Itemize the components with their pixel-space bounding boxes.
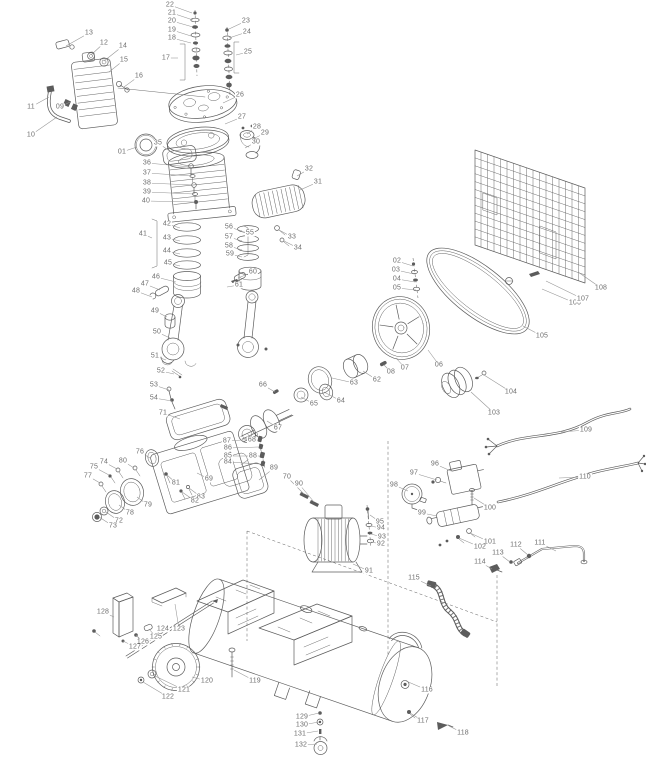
leader-line-80	[123, 461, 134, 468]
leader-line-114	[480, 562, 492, 569]
leader-line-01	[122, 147, 137, 152]
flywheel-bolt-stack	[412, 258, 420, 298]
leader-line-122	[143, 682, 168, 697]
flywheel-hub	[305, 352, 371, 402]
rod-bushing	[165, 314, 175, 328]
leader-line-22	[170, 5, 192, 13]
discharge-hose	[426, 580, 470, 638]
pressure-gauge	[402, 484, 427, 510]
bracket-17	[180, 44, 185, 80]
rod-cap-parts	[161, 357, 196, 409]
leader-line-46	[156, 277, 176, 282]
leader-line-75	[94, 467, 109, 475]
leader-line-131	[300, 731, 318, 734]
leader-line-47	[145, 284, 160, 290]
leader-line-39	[147, 192, 194, 194]
mounting-platforms	[197, 580, 352, 665]
leader-line-89	[259, 468, 274, 480]
leader-line-19	[172, 30, 191, 36]
cylinder	[162, 149, 237, 222]
leader-line-33	[279, 230, 292, 237]
grille-grid	[475, 152, 585, 281]
leader-line-73	[99, 517, 113, 526]
leader-line-63	[332, 378, 354, 383]
leader-line-108	[578, 272, 601, 288]
diagram-svg	[0, 0, 646, 768]
motor	[304, 505, 374, 572]
leader-line-94	[370, 526, 381, 528]
leader-line-129	[302, 713, 319, 717]
leader-line-31	[300, 182, 318, 190]
leader-line-101	[470, 533, 490, 542]
leader-line-16	[124, 76, 139, 87]
leader-line-12	[91, 43, 104, 55]
leader-line-105	[523, 326, 542, 336]
aftercooler-pipe	[47, 85, 78, 121]
leader-line-113	[498, 553, 510, 562]
leader-line-99	[422, 513, 437, 516]
leader-line-41	[143, 234, 152, 238]
leader-line-49	[155, 311, 167, 317]
leader-line-32	[297, 169, 309, 176]
leader-line-34	[284, 241, 298, 248]
guard-bolt	[529, 271, 540, 277]
motor-terminal-box	[325, 505, 342, 519]
leader-line-69	[197, 473, 209, 479]
leader-line-86	[228, 447, 258, 448]
leader-line-61	[227, 285, 239, 287]
leader-line-106	[542, 289, 575, 303]
leader-line-56	[229, 227, 242, 231]
leader-line-13	[66, 33, 89, 46]
cylinder-base-gasket	[165, 398, 232, 442]
leader-line-107	[546, 281, 583, 299]
wheel	[138, 643, 235, 690]
leader-line-18	[172, 38, 191, 43]
leader-line-51	[155, 356, 166, 360]
motor-pulley	[437, 364, 486, 401]
leader-line-119	[234, 670, 255, 681]
leader-line-120	[192, 677, 207, 681]
leader-line-08	[384, 365, 391, 372]
leader-line-21	[172, 13, 193, 20]
pressure-switch	[431, 456, 487, 495]
motor-fins	[318, 519, 349, 561]
leader-line-23	[229, 21, 246, 29]
connecting-rod-left	[162, 295, 185, 361]
drain-fitting	[55, 39, 69, 49]
leader-line-97	[414, 473, 437, 480]
leader-line-50	[157, 332, 170, 338]
leader-line-77	[88, 476, 100, 483]
piston-ring-sets	[152, 219, 259, 269]
check-valve	[426, 489, 487, 547]
drive-belt	[414, 233, 542, 349]
leader-line-74	[104, 462, 117, 469]
leader-line-14	[104, 46, 123, 61]
aftercooler-fins	[74, 65, 116, 117]
leader-line-52	[161, 371, 174, 374]
leader-line-126	[136, 635, 143, 642]
leader-line-93	[371, 534, 382, 537]
outlet-manifold	[240, 125, 260, 159]
leader-line-10	[31, 117, 57, 135]
connecting-rod-right	[237, 291, 268, 358]
leader-line-26	[223, 95, 240, 103]
leader-line-25	[236, 52, 248, 55]
leader-line-11	[31, 97, 49, 107]
leader-line-104	[484, 375, 511, 392]
leader-line-123	[175, 604, 179, 629]
leader-line-27	[225, 117, 242, 124]
bracket-25	[234, 42, 239, 73]
leader-line-92	[371, 542, 381, 544]
leader-line-20	[172, 21, 193, 27]
leader-line-02	[397, 261, 413, 266]
leader-line-112	[516, 545, 528, 555]
wrist-pins	[150, 272, 246, 299]
leader-line-54	[154, 398, 172, 401]
leader-line-95	[370, 515, 380, 522]
bracket-55	[244, 226, 248, 257]
tank-feet	[274, 680, 321, 709]
leader-line-121	[155, 676, 184, 690]
bracket-parts	[92, 588, 186, 643]
leader-line-125	[149, 629, 156, 637]
tank-drain-parts	[407, 710, 453, 730]
leader-line-15	[109, 60, 124, 72]
assembly-line	[118, 88, 205, 97]
cylinder-head	[167, 82, 239, 126]
leader-line-04	[397, 279, 415, 282]
shaft-key	[272, 389, 279, 395]
leader-line-70	[287, 477, 304, 494]
leader-line-38	[147, 183, 193, 185]
leader-line-118	[449, 726, 463, 733]
air-filter-fins	[255, 185, 303, 217]
leader-line-130	[302, 722, 319, 725]
flywheel	[367, 291, 436, 366]
leader-line-103	[471, 392, 494, 413]
power-cables	[485, 409, 646, 502]
leader-line-53	[154, 385, 169, 390]
construction-lines	[247, 441, 497, 687]
caster-parts	[314, 711, 327, 754]
aftercooler	[55, 39, 205, 129]
piston-left	[174, 272, 202, 299]
parts-diagram-canvas: 1312141516110910222120191817232425262728…	[0, 0, 646, 768]
leader-line-128	[103, 612, 114, 617]
leader-line-58	[229, 246, 242, 250]
leader-line-48	[136, 291, 152, 297]
leader-line-24	[229, 32, 247, 38]
leader-line-102	[459, 538, 480, 547]
main-bearings	[239, 388, 309, 443]
valve-fastener-stacks	[180, 10, 239, 95]
leader-line-96	[435, 464, 451, 471]
leader-line-66	[263, 385, 275, 392]
leader-line-57	[229, 237, 242, 241]
leader-line-62	[363, 371, 377, 380]
leader-line-06	[428, 350, 439, 365]
leader-line-127	[123, 641, 135, 647]
belt-guard-grille	[475, 150, 585, 285]
leader-line-30	[245, 142, 256, 148]
flywheel-key	[379, 360, 387, 366]
bracket-41	[152, 219, 157, 268]
leader-line-40	[146, 201, 195, 202]
leader-line-29	[253, 133, 265, 139]
crankshaft	[235, 401, 296, 446]
axle-rod	[126, 599, 218, 658]
air-filter	[250, 169, 307, 246]
ball-bearing-front	[135, 134, 157, 156]
